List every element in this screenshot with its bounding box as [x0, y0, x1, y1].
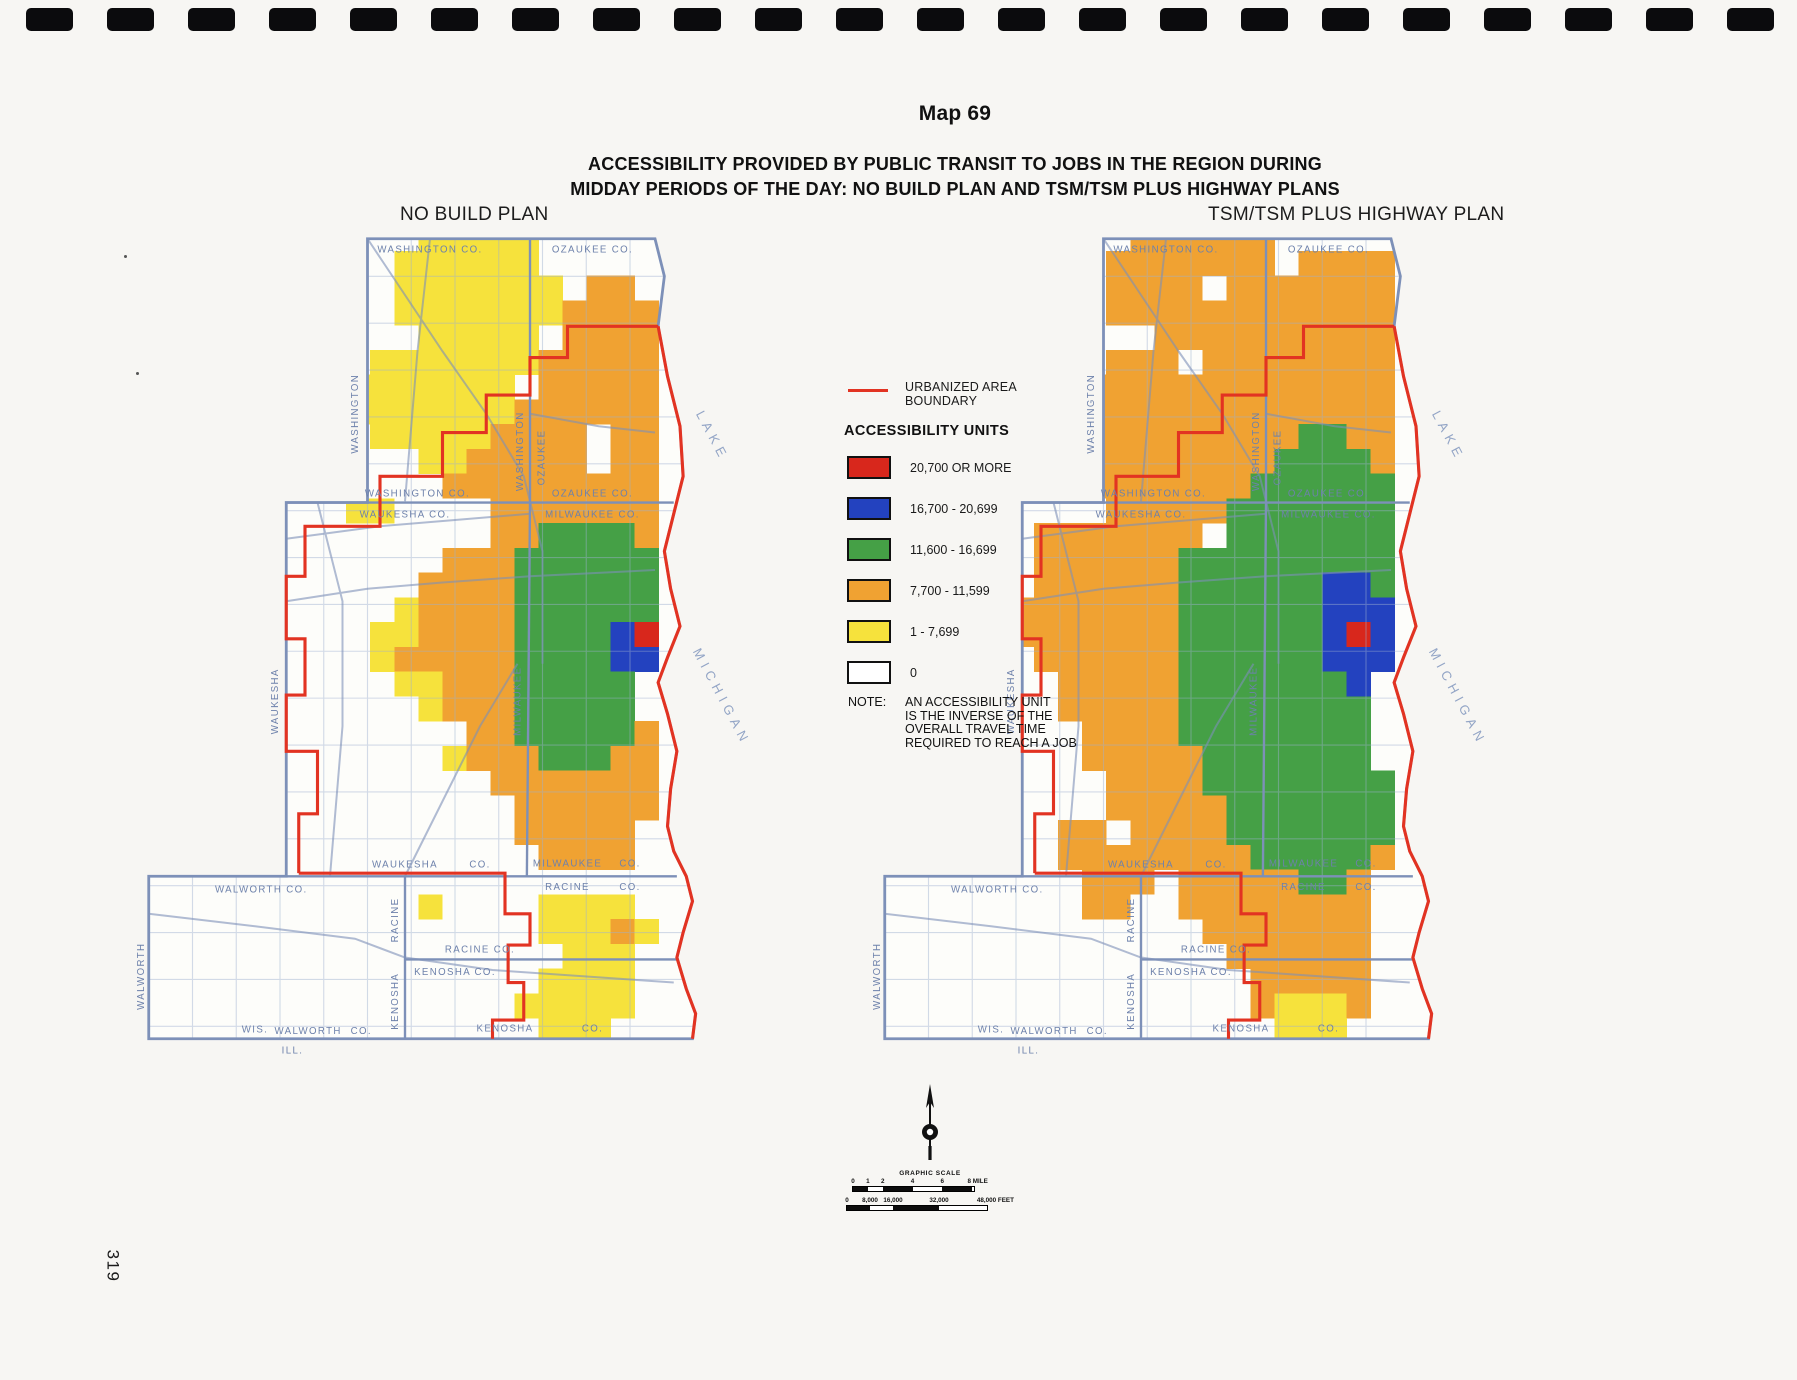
- scale-tick-label: 8 MILE: [968, 1178, 988, 1185]
- film-perforation: [1484, 8, 1531, 31]
- scale-tick-label: 32,000: [929, 1197, 948, 1204]
- scale-tick-label: 8,000: [862, 1197, 878, 1204]
- legend-items: 20,700 OR MORE16,700 - 20,69911,600 - 16…: [843, 448, 1103, 694]
- legend-item: 0: [843, 653, 1103, 694]
- legend-item-label: 11,600 - 16,699: [910, 543, 997, 557]
- lake-label: LAKE: [693, 408, 732, 463]
- north-arrow-icon: [915, 1082, 945, 1166]
- county-label: WALWORTH CO.: [215, 885, 308, 896]
- county-label: OZAUKEE CO.: [1288, 488, 1369, 499]
- legend-title: ACCESSIBILITY UNITS: [844, 423, 1009, 439]
- scan-speck: [136, 372, 139, 375]
- county-label: CO.: [582, 1023, 603, 1034]
- film-perforation: [1727, 8, 1774, 31]
- county-label: WASHINGTON CO.: [1101, 488, 1206, 499]
- scale-tick-label: 0: [851, 1178, 855, 1185]
- map-no-build-plan: WASHINGTON CO.OZAUKEE CO.WASHINGTON CO.W…: [130, 226, 755, 1064]
- county-label: KENOSHA CO.: [1150, 967, 1232, 978]
- county-label: WASHINGTON CO.: [377, 245, 482, 256]
- county-label: CO.: [619, 882, 640, 893]
- film-perforation: [1565, 8, 1612, 31]
- county-label: OZAUKEE CO.: [1288, 245, 1369, 256]
- county-label: WALWORTH CO.: [951, 885, 1044, 896]
- county-label: WASHINGTON: [515, 411, 526, 491]
- film-perforation: [350, 8, 397, 31]
- county-label: WAUKESHA: [1108, 860, 1174, 871]
- county-label: WASHINGTON CO.: [1113, 245, 1218, 256]
- county-label: MILWAUKEE: [533, 858, 602, 869]
- county-label: RACINE: [1126, 898, 1137, 943]
- title-block: Map 69 ACCESSIBILITY PROVIDED BY PUBLIC …: [570, 102, 1340, 202]
- film-perforation: [269, 8, 316, 31]
- county-label: MILWAUKEE: [1249, 667, 1260, 736]
- legend-item-label: 7,700 - 11,599: [910, 584, 990, 598]
- county-label: MILWAUKEE: [513, 667, 524, 736]
- county-label: WAUKESHA CO.: [1096, 510, 1187, 521]
- county-label: WALWORTH: [136, 943, 147, 1010]
- graphic-scale-block: GRAPHIC SCALE 012468 MILE 08,00016,00032…: [820, 1082, 1060, 1227]
- county-label: WALWORTH: [275, 1026, 342, 1037]
- lake-label: MICHIGAN: [690, 646, 754, 748]
- map-title-line1: ACCESSIBILITY PROVIDED BY PUBLIC TRANSIT…: [570, 152, 1340, 177]
- county-label: CO.: [1205, 860, 1226, 871]
- county-label: KENOSHA: [1213, 1023, 1270, 1034]
- county-label: OZAUKEE: [536, 430, 547, 486]
- legend-swatch: [847, 620, 891, 643]
- scale-bar-miles: 012468 MILE: [852, 1186, 975, 1192]
- scale-tick-label: 4: [911, 1178, 915, 1185]
- scale-bar-segment: [942, 1187, 972, 1191]
- legend-item: 20,700 OR MORE: [843, 448, 1103, 489]
- county-label: CO.: [1318, 1023, 1339, 1034]
- note-line: REQUIRED TO REACH A JOB: [905, 737, 1095, 751]
- boundary-label-line1: URBANIZED AREA: [905, 380, 1017, 394]
- boundary-label-line2: BOUNDARY: [905, 394, 1017, 408]
- note-label: NOTE:: [848, 696, 886, 710]
- county-label: WAUKESHA: [372, 860, 438, 871]
- legend-swatch: [847, 538, 891, 561]
- film-perforation: [1322, 8, 1369, 31]
- county-label: ILL.: [1018, 1046, 1040, 1057]
- lake-label: MICHIGAN: [1426, 646, 1490, 748]
- legend-swatch: [847, 456, 891, 479]
- page-number: 319: [102, 1250, 122, 1283]
- county-label: CO.: [1087, 1026, 1108, 1037]
- legend-item-label: 20,700 OR MORE: [910, 461, 1011, 475]
- film-perforation: [26, 8, 73, 31]
- county-label: OZAUKEE: [1272, 430, 1283, 486]
- scale-bar-segment: [893, 1206, 939, 1210]
- legend-item: 16,700 - 20,699: [843, 489, 1103, 530]
- film-perforation: [1160, 8, 1207, 31]
- county-label: RACINE CO.: [1181, 945, 1251, 956]
- note-line: AN ACCESSIBILITY UNIT: [905, 696, 1095, 710]
- county-label: WIS.: [242, 1025, 268, 1036]
- panel-label-tsm: TSM/TSM PLUS HIGHWAY PLAN: [1208, 204, 1504, 226]
- scale-bar-segment: [939, 1206, 985, 1210]
- county-label: MILWAUKEE CO.: [545, 510, 640, 521]
- legend: URBANIZED AREA BOUNDARY ACCESSIBILITY UN…: [843, 376, 1103, 776]
- urbanized-area-boundary-label: URBANIZED AREA BOUNDARY: [905, 380, 1017, 408]
- county-label: MILWAUKEE CO.: [1281, 510, 1376, 521]
- scale-bar-segment: [853, 1187, 868, 1191]
- scale-bar-segment: [913, 1187, 943, 1191]
- film-perforation: [107, 8, 154, 31]
- county-label: KENOSHA CO.: [414, 967, 496, 978]
- county-label: ILL.: [282, 1046, 304, 1057]
- film-perforation: [1646, 8, 1693, 31]
- film-perforation: [917, 8, 964, 31]
- film-perforation: [431, 8, 478, 31]
- film-perforation: [674, 8, 721, 31]
- scale-bar-segment: [868, 1187, 883, 1191]
- film-perforation: [593, 8, 640, 31]
- scale-tick-label: 6: [940, 1178, 944, 1185]
- scale-tick-label: 0: [845, 1197, 849, 1204]
- note-line: OVERALL TRAVEL TIME: [905, 723, 1095, 737]
- legend-item: 7,700 - 11,599: [843, 571, 1103, 612]
- county-label: RACINE: [545, 882, 590, 893]
- map-number: Map 69: [570, 102, 1340, 126]
- legend-item-label: 0: [910, 666, 917, 680]
- county-label: RACINE: [1281, 882, 1326, 893]
- scale-bar-segment: [883, 1187, 913, 1191]
- map-title-line2: MIDDAY PERIODS OF THE DAY: NO BUILD PLAN…: [570, 177, 1340, 202]
- county-label: WAUKESHA: [270, 668, 281, 734]
- note-text: AN ACCESSIBILITY UNITIS THE INVERSE OF T…: [905, 696, 1095, 750]
- legend-item-label: 1 - 7,699: [910, 625, 959, 639]
- scale-tick-label: 1: [866, 1178, 870, 1185]
- county-label: WASHINGTON: [1251, 411, 1262, 491]
- legend-swatch: [847, 497, 891, 520]
- county-label: RACINE: [390, 898, 401, 943]
- county-label: WASHINGTON: [350, 374, 361, 454]
- county-label: CO.: [469, 860, 490, 871]
- county-label: CO.: [351, 1026, 372, 1037]
- film-perforation: [188, 8, 235, 31]
- graphic-scale-title: GRAPHIC SCALE: [899, 1170, 961, 1177]
- county-label: WALWORTH: [1011, 1026, 1078, 1037]
- film-perforation: [998, 8, 1045, 31]
- panel-label-no-build: NO BUILD PLAN: [400, 204, 549, 226]
- scale-bar-segment: [870, 1206, 893, 1210]
- scale-tick-label: 16,000: [883, 1197, 902, 1204]
- county-label: MILWAUKEE: [1269, 858, 1338, 869]
- county-label: OZAUKEE CO.: [552, 488, 633, 499]
- scale-tick-label: 48,000 FEET: [977, 1197, 1014, 1204]
- region-map-svg-no-build: WASHINGTON CO.OZAUKEE CO.WASHINGTON CO.W…: [130, 226, 755, 1064]
- county-label: KENOSHA: [477, 1023, 534, 1034]
- county-label: KENOSHA: [1126, 973, 1137, 1030]
- film-perforation: [1403, 8, 1450, 31]
- county-label: WIS.: [978, 1025, 1004, 1036]
- film-perforation: [512, 8, 559, 31]
- film-perforation: [755, 8, 802, 31]
- scanned-map-page: Map 69 ACCESSIBILITY PROVIDED BY PUBLIC …: [0, 0, 1797, 1380]
- legend-swatch: [847, 579, 891, 602]
- county-label: KENOSHA: [390, 973, 401, 1030]
- county-label: WASHINGTON CO.: [365, 488, 470, 499]
- scan-speck: [124, 255, 127, 258]
- legend-item: 1 - 7,699: [843, 612, 1103, 653]
- urbanized-area-boundary-line-symbol: [848, 389, 888, 392]
- film-perforation: [1241, 8, 1288, 31]
- film-perforation: [1079, 8, 1126, 31]
- legend-swatch: [847, 661, 891, 684]
- lake-label: LAKE: [1429, 408, 1468, 463]
- legend-item: 11,600 - 16,699: [843, 530, 1103, 571]
- legend-item-label: 16,700 - 20,699: [910, 502, 998, 516]
- county-label: WAUKESHA CO.: [360, 510, 451, 521]
- note-line: IS THE INVERSE OF THE: [905, 710, 1095, 724]
- county-label: WALWORTH: [872, 943, 883, 1010]
- county-label: CO.: [619, 858, 640, 869]
- county-label: RACINE CO.: [445, 945, 515, 956]
- scale-bar-feet: 08,00016,00032,00048,000 FEET: [846, 1205, 988, 1211]
- county-label: OZAUKEE CO.: [552, 245, 633, 256]
- scale-bar-segment: [847, 1206, 870, 1210]
- scale-tick-label: 2: [881, 1178, 885, 1185]
- county-label: CO.: [1355, 858, 1376, 869]
- film-perforation: [836, 8, 883, 31]
- county-label: CO.: [1355, 882, 1376, 893]
